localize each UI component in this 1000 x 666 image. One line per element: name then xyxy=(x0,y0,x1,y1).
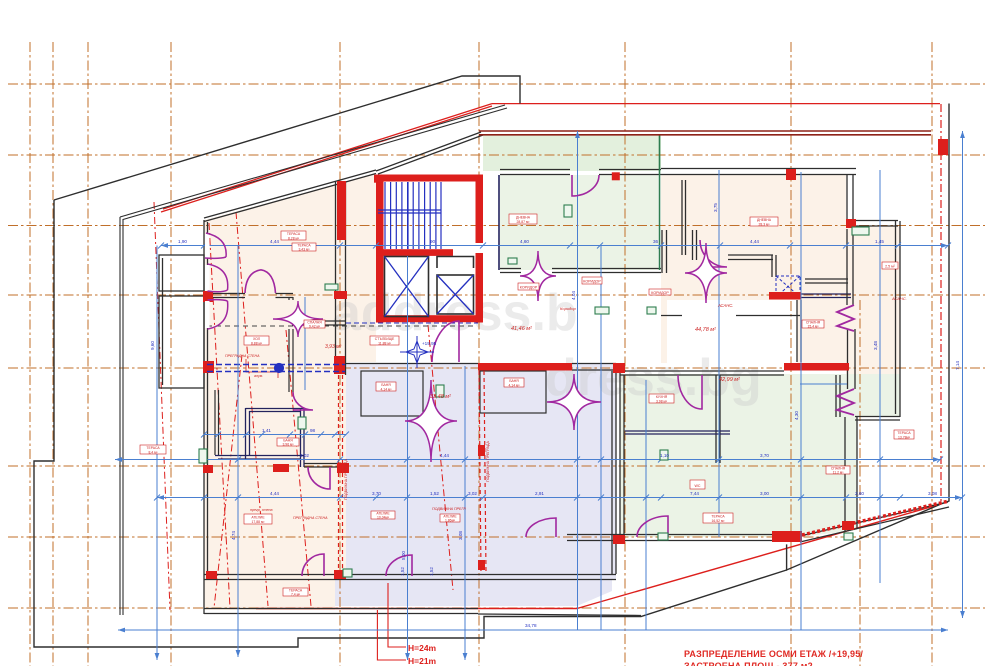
svg-text:прегр. стена: прегр. стена xyxy=(250,508,273,512)
svg-text:3,02: 3,02 xyxy=(300,453,309,458)
svg-text:16,52 м²: 16,52 м² xyxy=(712,519,726,523)
svg-text:4,60: 4,60 xyxy=(520,239,529,244)
svg-text:8,4 м²: 8,4 м² xyxy=(148,450,158,454)
svg-text:ЗАСТРОЕНА ПЛОЩ - 377 м2: ЗАСТРОЕНА ПЛОЩ - 377 м2 xyxy=(684,661,813,666)
svg-text:1,52: 1,52 xyxy=(430,491,439,496)
svg-text:10,04м²: 10,04м² xyxy=(377,515,390,519)
svg-text:41,46 м²: 41,46 м² xyxy=(511,326,532,332)
svg-text:90: 90 xyxy=(430,239,436,244)
svg-text:АТЕЛИЕ: АТЕЛИЕ xyxy=(251,516,265,520)
svg-text:9,60: 9,60 xyxy=(150,341,155,350)
svg-text:ПОДВИЖНА ПРЕГРАДА: ПОДВИЖНА ПРЕГРАДА xyxy=(344,459,348,500)
svg-text:4,44: 4,44 xyxy=(440,453,449,458)
svg-text:8,88 м²: 8,88 м² xyxy=(251,341,263,345)
svg-text:РАЗПРЕДЕЛЕНИЕ ОСМИ ЕТАЖ /+19,9: РАЗПРЕДЕЛЕНИЕ ОСМИ ЕТАЖ /+19,95/ xyxy=(684,649,863,659)
svg-text:11,88 м²: 11,88 м² xyxy=(378,341,392,345)
svg-text:13,78м²: 13,78м² xyxy=(898,435,911,439)
svg-text:алум.: алум. xyxy=(254,374,263,378)
svg-text:1,86м²: 1,86м² xyxy=(445,518,456,522)
svg-text:Коридор: Коридор xyxy=(560,306,576,311)
svg-text:КОРИДОР: КОРИДОР xyxy=(651,291,669,295)
svg-text:2,60: 2,60 xyxy=(855,491,864,496)
svg-text:АСАНС.: АСАНС. xyxy=(891,296,907,301)
svg-text:ПРЕГРАДНА СТЕНА: ПРЕГРАДНА СТЕНА xyxy=(225,354,260,358)
svg-text:9,42 м²: 9,42 м² xyxy=(309,324,321,328)
svg-text:7,44: 7,44 xyxy=(690,491,699,496)
svg-text:1,90: 1,90 xyxy=(178,239,187,244)
svg-text:33,48 м²: 33,48 м² xyxy=(430,394,451,400)
svg-text:11,2 м²: 11,2 м² xyxy=(833,470,845,474)
svg-text:4,04: 4,04 xyxy=(571,291,576,300)
svg-text:3,02: 3,02 xyxy=(468,491,477,496)
svg-text:АСАНС.: АСАНС. xyxy=(717,303,733,308)
svg-text:8,28 м²: 8,28 м² xyxy=(288,236,300,240)
svg-text:3,93 м²: 3,93 м² xyxy=(325,344,342,350)
svg-text:28,3 м²: 28,3 м² xyxy=(758,222,770,226)
svg-text:1,41: 1,41 xyxy=(262,428,271,433)
svg-text:3,70: 3,70 xyxy=(372,491,381,496)
svg-text:2,91: 2,91 xyxy=(535,491,544,496)
svg-text:3,43 м²: 3,43 м² xyxy=(298,247,310,251)
svg-text:1,10: 1,10 xyxy=(660,453,669,458)
svg-text:4,14 м²: 4,14 м² xyxy=(380,387,392,391)
svg-text:3,48: 3,48 xyxy=(873,341,878,350)
svg-text:5,00: 5,00 xyxy=(401,551,406,560)
svg-text:4,44: 4,44 xyxy=(270,239,279,244)
svg-text:4,44: 4,44 xyxy=(750,239,759,244)
svg-text:H=24m: H=24m xyxy=(408,643,437,653)
svg-text:2,5 м²: 2,5 м² xyxy=(885,265,895,269)
svg-text:3,00: 3,00 xyxy=(760,491,769,496)
svg-text:ПОДВИЖНА ПРЕГР.: ПОДВИЖНА ПРЕГР. xyxy=(432,507,466,511)
svg-text:КОРИДОР: КОРИДОР xyxy=(583,280,601,284)
svg-text:98: 98 xyxy=(310,428,316,433)
svg-text:4,44: 4,44 xyxy=(270,491,279,496)
svg-text:3,08: 3,08 xyxy=(928,491,937,496)
svg-text:address.b: address.b xyxy=(332,284,578,342)
svg-text:WC: WC xyxy=(695,484,701,488)
svg-text:28,87 м²: 28,87 м² xyxy=(517,220,531,224)
svg-text:42,99 м²: 42,99 м² xyxy=(719,377,740,383)
svg-text:1,45: 1,45 xyxy=(875,239,884,244)
svg-text:1,52: 1,52 xyxy=(400,567,405,576)
svg-text:3,70: 3,70 xyxy=(760,453,769,458)
svg-text:ПОДВИЖНА ПРЕГРАДА: ПОДВИЖНА ПРЕГРАДА xyxy=(486,441,490,482)
svg-text:17,88 м²: 17,88 м² xyxy=(252,520,266,524)
svg-text:3,75: 3,75 xyxy=(713,203,718,212)
svg-text:4,14 м²: 4,14 м² xyxy=(508,383,520,387)
svg-text:3,08: 3,08 xyxy=(458,531,463,540)
svg-text:44,78 м²: 44,78 м² xyxy=(695,327,716,333)
svg-text:+19,95: +19,95 xyxy=(422,341,437,346)
svg-text:ТЕРАСА: ТЕРАСА xyxy=(711,515,725,519)
svg-text:36: 36 xyxy=(653,239,659,244)
svg-text:H=21m: H=21m xyxy=(408,656,437,666)
svg-text:4,30: 4,30 xyxy=(794,411,799,420)
svg-text:ПРЕГРАДНА СТЕНА: ПРЕГРАДНА СТЕНА xyxy=(293,516,328,520)
svg-text:1,52: 1,52 xyxy=(429,567,434,576)
svg-text:ДНЕВНА: ДНЕВНА xyxy=(516,216,531,220)
svg-text:34,78: 34,78 xyxy=(525,623,537,628)
svg-text:3,96 м²: 3,96 м² xyxy=(282,442,294,446)
svg-text:7,4 м²: 7,4 м² xyxy=(291,592,301,596)
svg-text:15,4 м²: 15,4 м² xyxy=(807,324,819,328)
svg-text:7,14: 7,14 xyxy=(955,361,960,370)
svg-text:4,74: 4,74 xyxy=(231,531,236,540)
svg-text:КОРИДОР: КОРИДОР xyxy=(520,286,538,290)
svg-text:3,98 м²: 3,98 м² xyxy=(656,399,668,403)
